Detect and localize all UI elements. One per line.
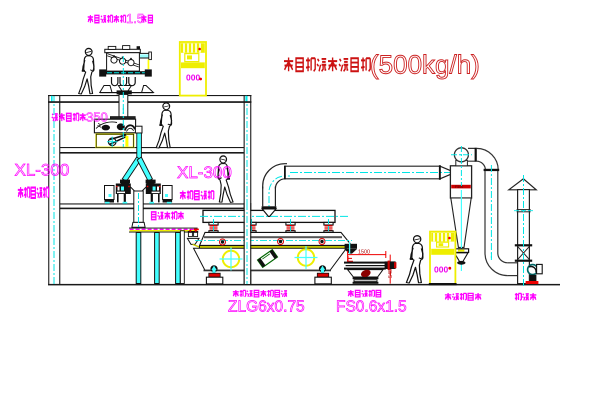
svg-text:FS0.6x1.5: FS0.6x1.5 bbox=[336, 299, 407, 316]
svg-text:ZLG6x0.75: ZLG6x0.75 bbox=[228, 299, 305, 316]
svg-text:F500: F500 bbox=[455, 185, 463, 189]
svg-text:1500: 1500 bbox=[358, 250, 370, 256]
svg-text:000: 000 bbox=[434, 265, 448, 275]
svg-text:1.5: 1.5 bbox=[126, 11, 144, 26]
svg-text:350: 350 bbox=[86, 110, 108, 125]
svg-text:(500kg/h): (500kg/h) bbox=[370, 50, 480, 80]
svg-text:000: 000 bbox=[186, 73, 200, 83]
svg-text:548: 548 bbox=[388, 269, 394, 278]
svg-text:XL-300: XL-300 bbox=[15, 161, 70, 180]
svg-text:XL-300: XL-300 bbox=[177, 163, 232, 182]
